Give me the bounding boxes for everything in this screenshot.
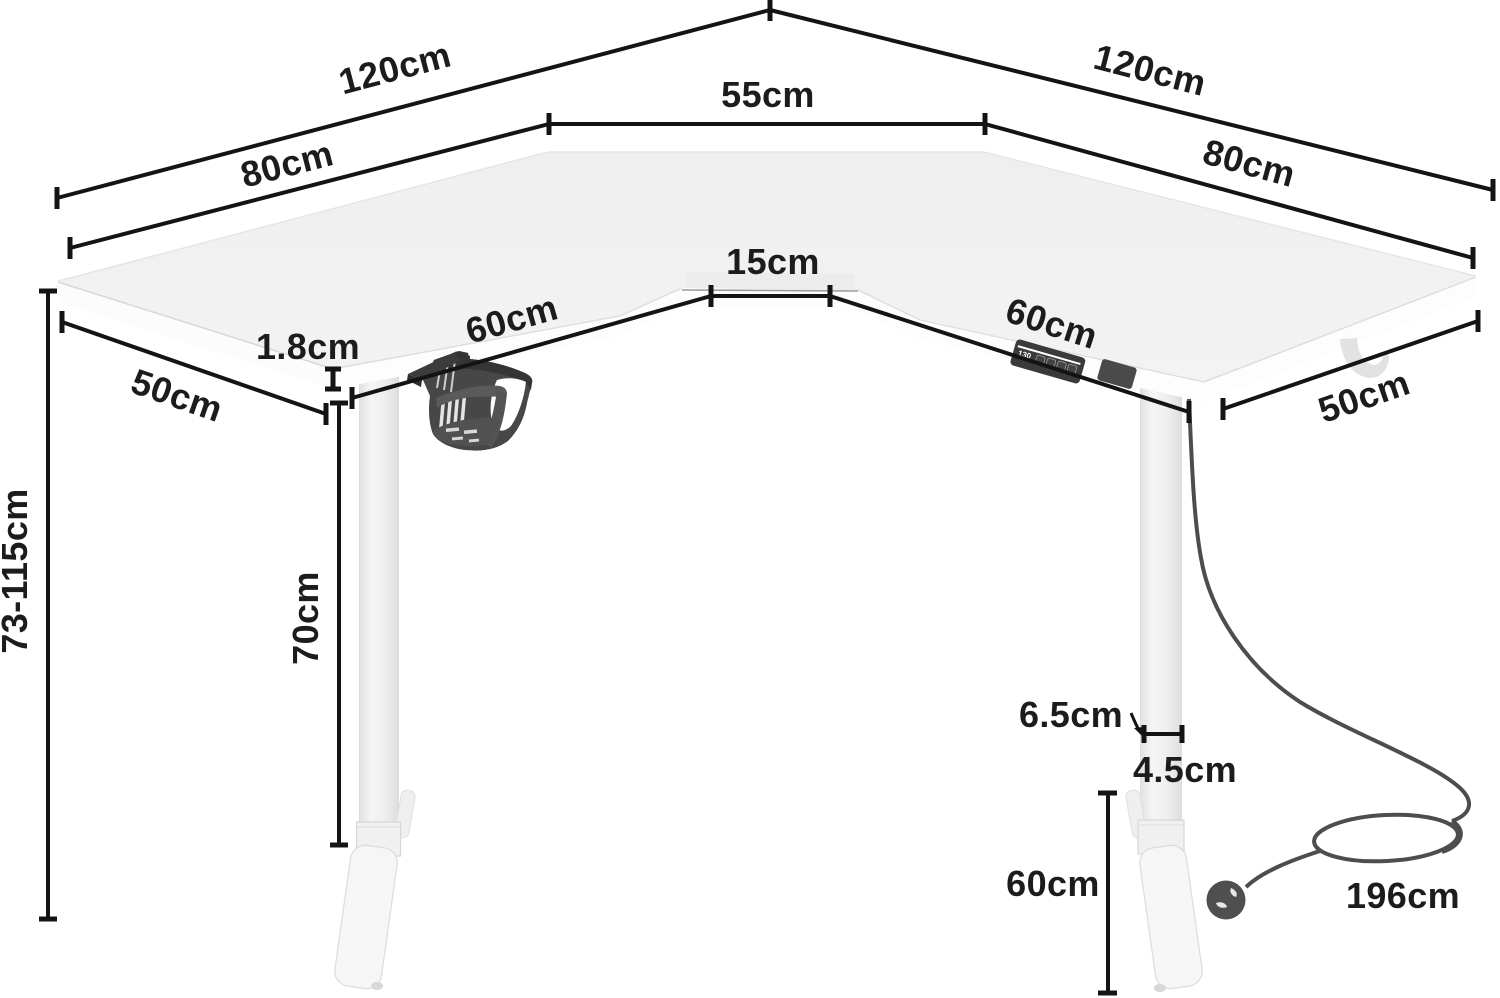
svg-text:55cm: 55cm bbox=[721, 74, 815, 115]
svg-text:80cm: 80cm bbox=[236, 132, 337, 195]
svg-text:120cm: 120cm bbox=[334, 34, 455, 103]
svg-text:60cm: 60cm bbox=[1006, 863, 1100, 904]
svg-text:50cm: 50cm bbox=[126, 360, 228, 430]
svg-text:196cm: 196cm bbox=[1346, 875, 1460, 916]
svg-text:73-115cm: 73-115cm bbox=[0, 488, 35, 653]
svg-text:1.8cm: 1.8cm bbox=[256, 326, 360, 367]
svg-text:4.5cm: 4.5cm bbox=[1133, 749, 1237, 790]
svg-text:70cm: 70cm bbox=[285, 571, 326, 665]
svg-text:6.5cm: 6.5cm bbox=[1019, 694, 1123, 735]
svg-text:15cm: 15cm bbox=[726, 241, 820, 282]
